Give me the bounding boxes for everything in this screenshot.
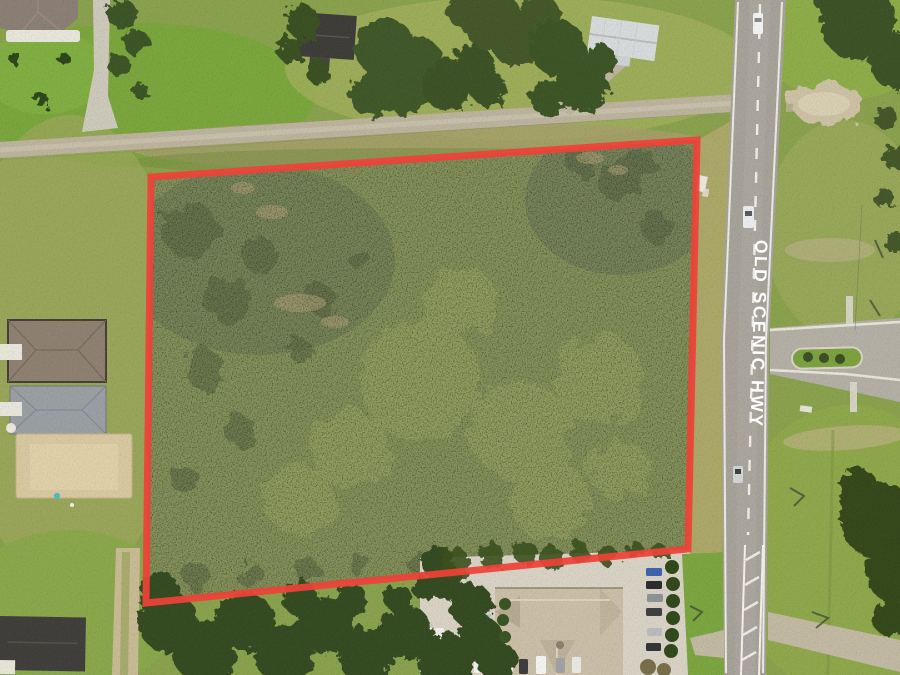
aerial-photo: OLD SCENIC HWY [0,0,900,675]
aerial-photo-canvas: OLD SCENIC HWY [0,0,900,675]
